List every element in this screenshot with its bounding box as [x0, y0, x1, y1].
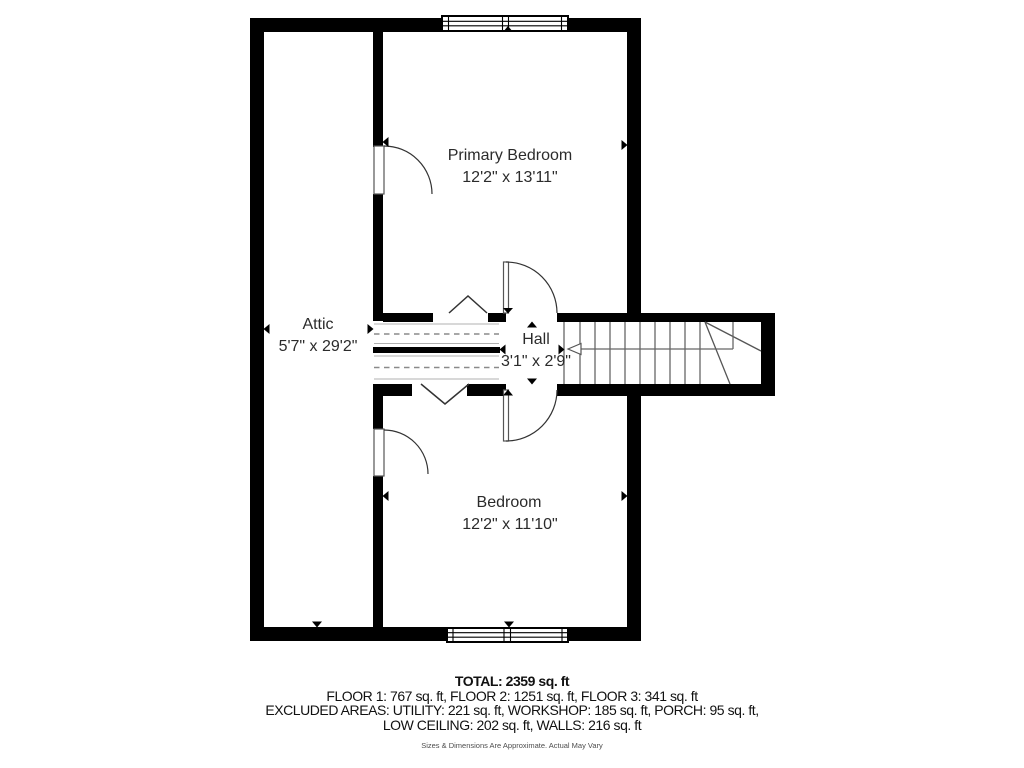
marker-attic-bottom: [312, 622, 322, 628]
wall-attic-b: [373, 194, 383, 321]
marker-attic-right: [368, 324, 374, 334]
marker-hall-bottom: [527, 379, 537, 385]
attic-door-leaf: [374, 146, 384, 194]
hall-upper-door-leaf: [504, 262, 509, 313]
wall-hall-bottom-left: [383, 384, 412, 396]
closet-door-leaf: [374, 429, 384, 476]
bedroom-name: Bedroom: [477, 494, 542, 511]
window-bottom: [447, 628, 568, 642]
wall-left: [250, 18, 264, 641]
marker-bedroom-bottom: [504, 622, 514, 628]
marker-hall-top: [527, 322, 537, 328]
doors: [374, 146, 557, 476]
wall-right-upper: [627, 18, 641, 313]
footer-floors: FLOOR 1: 767 sq. ft, FLOOR 2: 1251 sq. f…: [0, 689, 1024, 703]
floorplan-page: Attic 5'7" x 29'2" Primary Bedroom 12'2"…: [0, 0, 1024, 768]
window-top-frame: [442, 16, 568, 31]
hall-dims: 3'1" x 2'9": [501, 353, 571, 370]
window-top: [442, 16, 568, 31]
marker-bedroom-left: [383, 491, 389, 501]
hall-lower-door-leaf: [504, 390, 509, 441]
footer-total: TOTAL: 2359 sq. ft: [0, 674, 1024, 688]
wall-right-lower: [627, 396, 641, 641]
footer-excluded: EXCLUDED AREAS: UTILITY: 221 sq. ft, WOR…: [0, 703, 1024, 717]
room-labels: Attic 5'7" x 29'2" Primary Bedroom 12'2"…: [279, 147, 573, 533]
marker-bedroom-right: [622, 491, 628, 501]
wall-hall-bottom-stub: [467, 384, 506, 396]
closet-door-arc: [384, 430, 428, 474]
wall-attic-a: [373, 32, 383, 147]
wall-hall-top-stub: [488, 313, 506, 322]
wall-hall-top-left: [383, 313, 433, 322]
wall-kneewall-middle: [373, 347, 500, 353]
bedroom-dims: 12'2" x 11'10": [462, 516, 557, 533]
marker-attic-left: [264, 324, 270, 334]
hall-name: Hall: [522, 331, 550, 348]
chevron-up: [449, 296, 487, 313]
marker-primary-right: [622, 140, 628, 150]
primary-bedroom-name: Primary Bedroom: [448, 147, 572, 164]
wall-stairs-right: [761, 313, 775, 396]
hall-lower-door-arc: [506, 390, 557, 441]
windows: [442, 16, 568, 642]
primary-bedroom-dims: 12'2" x 13'11": [462, 169, 557, 186]
wall-bottom: [250, 627, 641, 641]
wall-stairs-bottom: [557, 384, 775, 396]
attic-dims: 5'7" x 29'2": [279, 338, 358, 355]
footer-excluded2: LOW CEILING: 202 sq. ft, WALLS: 216 sq. …: [0, 718, 1024, 732]
wall-attic-d: [373, 476, 383, 627]
chevron-down: [421, 384, 469, 404]
wall-stairs-top: [557, 313, 775, 322]
attic-name: Attic: [302, 316, 333, 333]
wall-attic-c: [373, 384, 383, 429]
staircase: [564, 322, 761, 384]
hall-upper-door-arc: [506, 262, 557, 313]
floor-plan: Attic 5'7" x 29'2" Primary Bedroom 12'2"…: [0, 0, 1024, 768]
footer-disclaimer: Sizes & Dimensions Are Approximate. Actu…: [0, 742, 1024, 750]
window-bottom-frame: [447, 628, 568, 642]
attic-door-arc: [384, 146, 432, 194]
stair-winder-2: [705, 322, 730, 384]
